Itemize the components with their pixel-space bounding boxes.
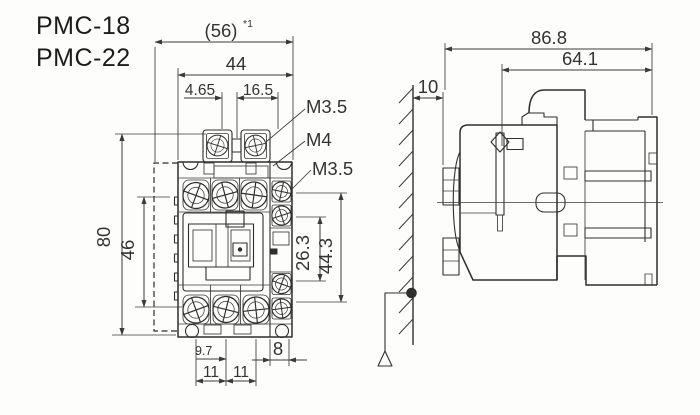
- dimension-bottom: 9.7 11 11 8: [195, 338, 307, 386]
- rear-bracket: [557, 117, 657, 285]
- technical-drawing: PMC-18 PMC-22: [0, 0, 700, 415]
- support-triangle: [378, 351, 392, 366]
- main-screw-3: [239, 180, 268, 209]
- mounting-wall: [378, 85, 417, 366]
- dimension-body-width: 44: [178, 53, 293, 160]
- dim-mounting-pitch-label: 46: [117, 240, 138, 261]
- dim-overall-width-note: *1: [243, 18, 253, 30]
- rail-slot-lower: [585, 228, 651, 238]
- main-screw-2: [209, 179, 241, 211]
- callout-coil-screw: M3.5: [306, 96, 347, 117]
- dim-overall-width-label: (56): [205, 20, 238, 41]
- front-view: M3.5 M4 M3.5 (56) *1 44 4.65 16.5: [93, 18, 353, 386]
- dim-depth-body-label: 64.1: [562, 48, 598, 69]
- dimension-wall-gap: 10: [413, 76, 443, 165]
- callout-main-screw: M4: [306, 129, 332, 150]
- model-name-2: PMC-22: [36, 44, 131, 72]
- dim-aux-width-label: 8: [273, 338, 283, 359]
- coil-terminal-link: [232, 139, 241, 152]
- mount-notch-right: [277, 162, 292, 170]
- main-screw-6: [242, 296, 271, 325]
- dim-bottom-offset-label: 9.7: [195, 344, 212, 358]
- dim-depth-total-label: 86.8: [531, 27, 567, 48]
- dimension-aux-block: 26.3 44.3: [292, 193, 347, 302]
- drawing-page: PMC-18 PMC-22: [0, 0, 700, 415]
- dim-wall-gap-label: 10: [418, 76, 439, 97]
- dimension-depth-total: 86.8: [445, 27, 652, 115]
- main-terminals-upper: [178, 178, 270, 212]
- model-name-1: PMC-18: [36, 12, 131, 40]
- coil-terminal-blocks: [203, 130, 270, 162]
- aux-screw-2: [269, 203, 293, 227]
- side-profile: [437, 90, 663, 285]
- dim-aux-outer-label: 44.3: [315, 238, 336, 274]
- center-recess: [183, 211, 263, 291]
- aux-screw-4: [271, 298, 293, 320]
- mounting-hole-left: [186, 325, 199, 338]
- rail-slot-upper: [585, 171, 651, 181]
- dim-pole-pitch-a-label: 11: [203, 364, 219, 381]
- dim-height-label: 80: [93, 227, 114, 248]
- main-screw-5: [210, 294, 242, 326]
- top-cap: [522, 113, 557, 125]
- aux-contact-column: [269, 162, 294, 337]
- callout-aux-screw: M3.5: [312, 158, 353, 179]
- arc-shield-hump: [529, 90, 585, 120]
- dim-aux-inner-label: 26.3: [292, 235, 313, 271]
- dim-body-width-label: 44: [226, 53, 247, 74]
- support-leader: [385, 293, 411, 351]
- front-terminal-stacks: [443, 168, 459, 275]
- aux-screw-3: [269, 272, 294, 297]
- main-terminals-lower: [178, 285, 292, 338]
- dim-coil-pitch-label: 16.5: [243, 82, 273, 99]
- accessory-dashed-outline: [154, 163, 178, 331]
- mounting-hole-right: [276, 325, 289, 338]
- dim-pole-pitch-b-label: 11: [233, 364, 249, 381]
- coil-screw-right: [243, 133, 268, 158]
- dim-coil-offset-label: 4.65: [185, 82, 215, 99]
- aux-screw-1: [270, 180, 293, 203]
- dimension-mounting-pitch: 46: [117, 197, 182, 307]
- mount-notch-left: [183, 162, 198, 170]
- aux-latch-mark: [271, 249, 278, 255]
- side-view: 10 86.8 64.1: [378, 27, 663, 366]
- coil-screw-left: [204, 132, 230, 158]
- screw-callouts: M3.5 M4 M3.5: [266, 96, 353, 189]
- armature-lever: [491, 132, 523, 231]
- model-labels: PMC-18 PMC-22: [36, 12, 131, 72]
